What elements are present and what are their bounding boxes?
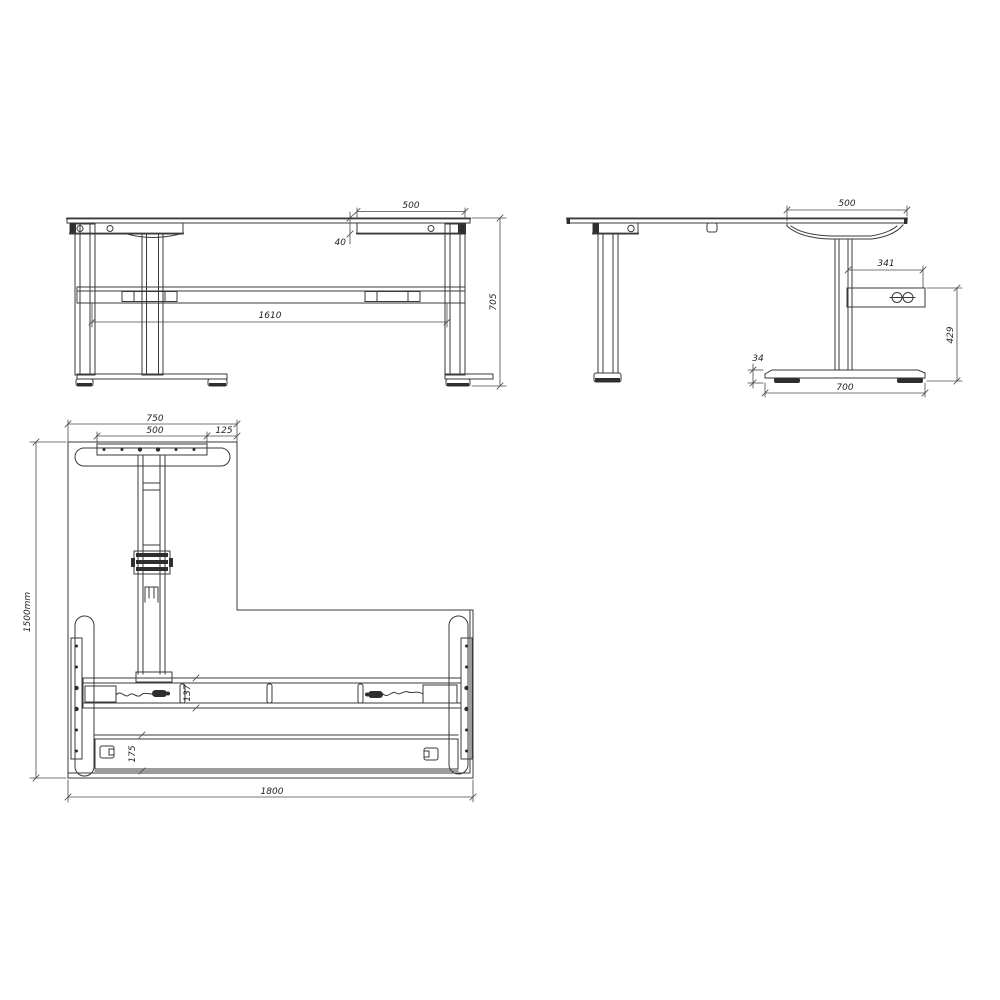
front-feet: [76, 374, 493, 386]
front-right-leg: [445, 224, 465, 375]
dim-label: 500: [402, 201, 419, 211]
side-left-bracket: [593, 223, 638, 234]
front-left-leg: [75, 224, 95, 375]
dim-label: 750: [146, 414, 163, 424]
dim-label: 700: [836, 383, 853, 393]
front-desktop: [67, 218, 470, 223]
side-curved-bracket: [787, 223, 903, 239]
dim-front-height: 705: [472, 215, 506, 389]
dim-control-box-width: 341: [845, 259, 926, 288]
beam-slot: [365, 292, 420, 302]
plan-top-foot: [75, 444, 230, 466]
dim-label: 1500mm: [23, 592, 33, 633]
column-base-flange: [136, 672, 172, 682]
left-motor-box: [85, 686, 116, 702]
beam-joint: [358, 684, 363, 703]
beam-slot: [122, 292, 177, 302]
dim-plan-overall-width: 1800: [65, 780, 476, 802]
dim-label: 341: [877, 259, 894, 269]
side-view: 500 341 429: [567, 199, 962, 397]
plan-rear-rail: [95, 735, 458, 771]
dim-label: 40: [335, 238, 347, 248]
dim-plan-overall-depth: 1500mm: [23, 439, 66, 781]
dim-label: 500: [838, 199, 855, 209]
power-cable-icon: [365, 691, 423, 698]
dim-plan-rear-rail-depth: 175: [128, 732, 145, 774]
dim-foot-thickness: 34: [748, 354, 764, 388]
dim-control-box-floor-height: 429: [927, 285, 962, 384]
beam-joint: [267, 684, 272, 703]
plan-crossbeam: [83, 678, 461, 708]
dim-label: 705: [489, 293, 499, 310]
screw-icon: [628, 225, 634, 231]
plan-dimensions: 750 500 125 1500mm: [23, 414, 476, 802]
technical-drawing-page: 500 40 1610 705: [0, 0, 1000, 1000]
dim-label: 137: [183, 684, 193, 701]
plan-leg-column: [131, 455, 173, 682]
dim-front-top-thickness: 40: [335, 212, 353, 248]
dim-label: 1800: [261, 787, 284, 797]
dim-label: 125: [215, 426, 232, 436]
front-view: 500 40 1610 705: [67, 201, 506, 389]
dim-plan-beam-depth: 137: [183, 675, 199, 711]
desk-frame-drawing: 500 40 1610 705: [0, 0, 1000, 1000]
rail-bracket: [424, 748, 438, 760]
screw-icon: [107, 226, 113, 232]
dim-plan-plate-width: 500: [94, 426, 210, 444]
dim-label: 500: [146, 426, 163, 436]
dim-label: 429: [946, 326, 956, 343]
connector-plug-icon: [890, 293, 915, 303]
control-box: [847, 288, 925, 307]
side-left-leg: [594, 234, 621, 382]
side-foot: [765, 370, 925, 383]
cable-clip: [145, 587, 158, 602]
dim-label: 1610: [259, 311, 282, 321]
side-dimensions: 500 341 429: [748, 199, 962, 397]
plan-desktop-outline: [68, 442, 473, 778]
side-right-leg: [835, 239, 852, 370]
dim-label: 34: [752, 354, 764, 364]
plan-view: 750 500 125 1500mm: [23, 414, 476, 802]
dim-foot-depth: 700: [762, 383, 928, 397]
screw-icon: [428, 226, 434, 232]
side-middle-clip: [707, 223, 717, 232]
dim-front-leg-span: 1610: [89, 303, 450, 327]
front-crossbeam: [77, 287, 465, 303]
front-dimensions: 500 40 1610 705: [89, 201, 506, 389]
power-cable-icon: [116, 690, 170, 697]
dim-front-bracket-width: 500: [354, 201, 468, 218]
dim-plan-corner-offset: 125: [207, 426, 240, 439]
dim-label: 175: [128, 745, 138, 762]
motor-bracket: [131, 551, 173, 574]
front-middle-leg: [142, 234, 163, 375]
right-motor-box: [423, 685, 457, 703]
front-left-bracket: [70, 223, 183, 238]
rail-bracket: [100, 746, 114, 758]
